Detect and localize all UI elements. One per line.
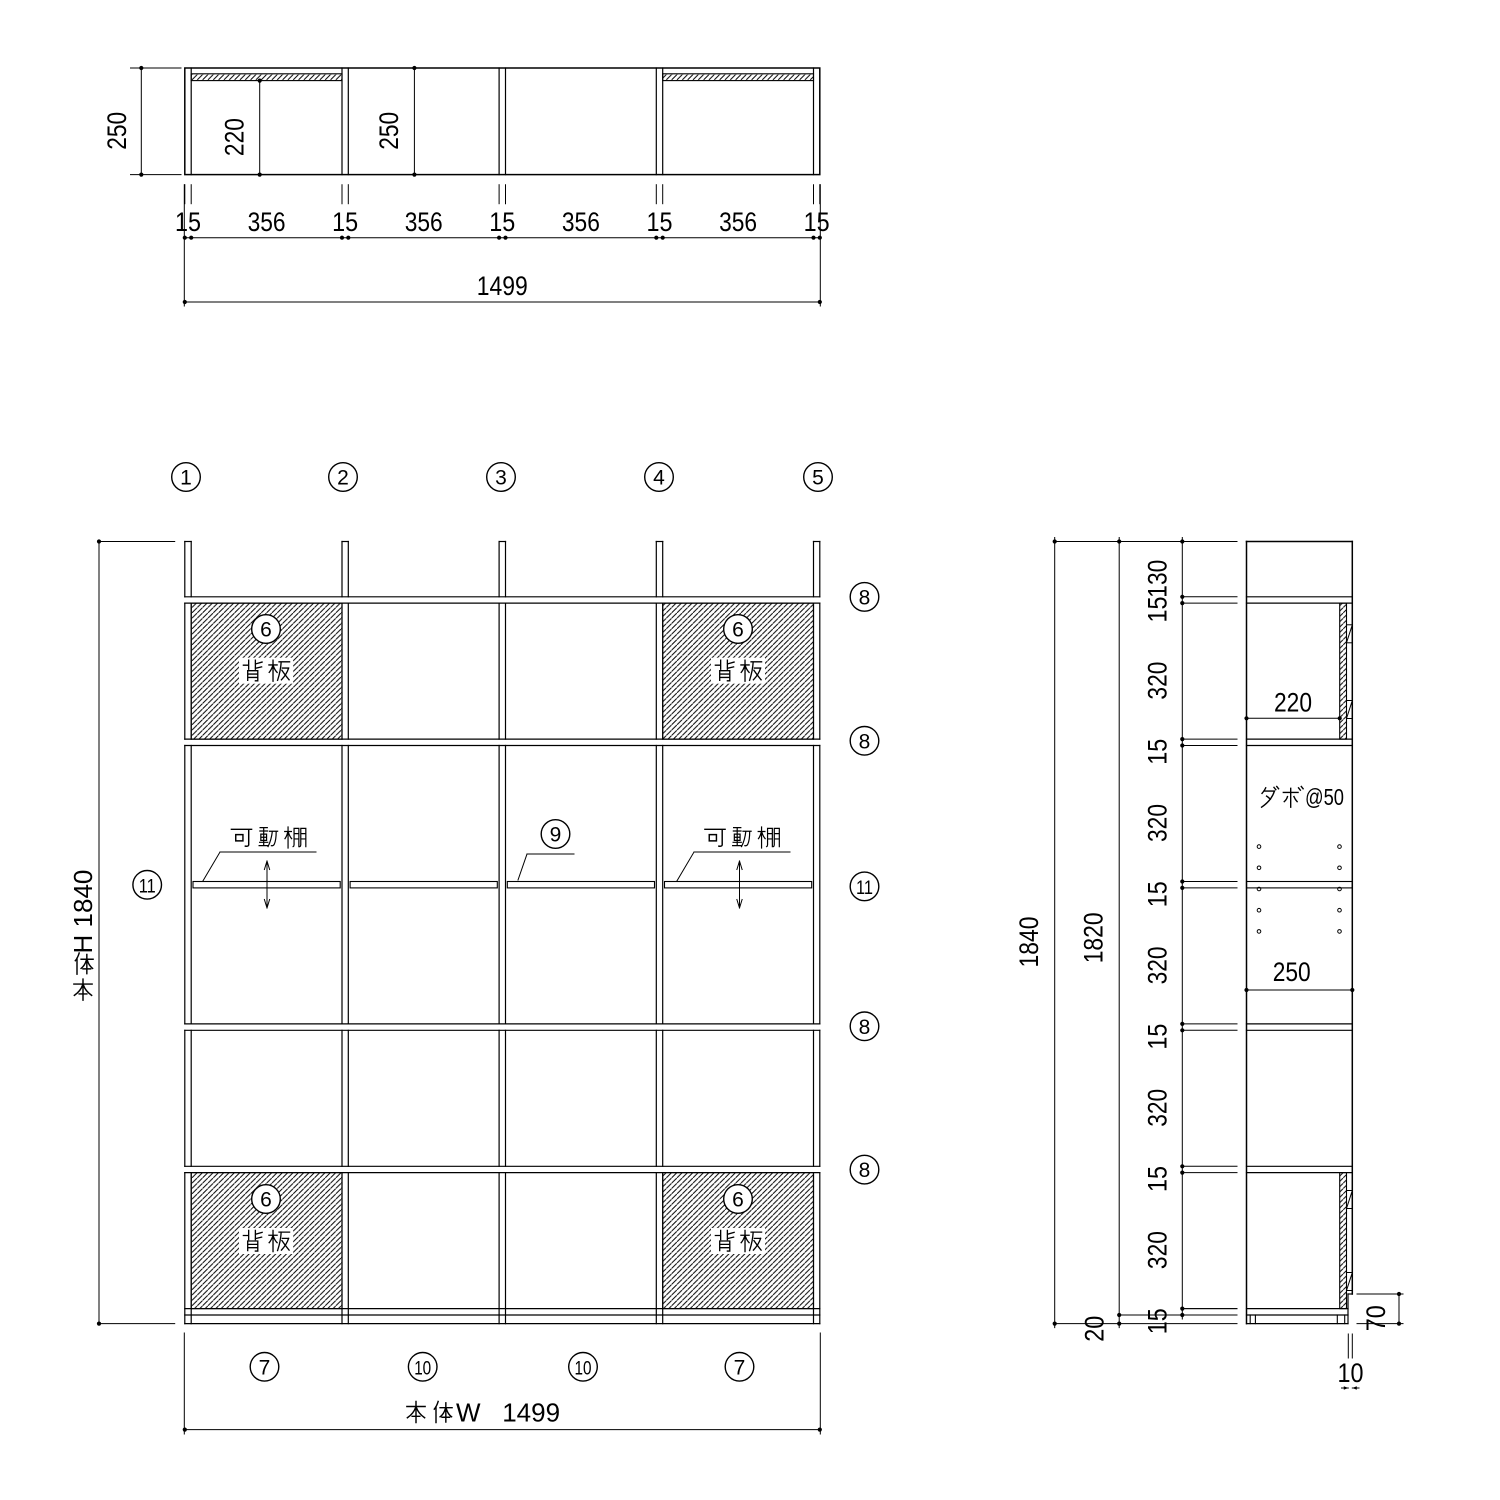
svg-text:3: 3 <box>495 467 507 490</box>
svg-text:11: 11 <box>139 876 156 897</box>
svg-text:15: 15 <box>1143 1024 1173 1050</box>
svg-text:15: 15 <box>647 207 673 237</box>
svg-text:356: 356 <box>562 207 600 237</box>
svg-text:250: 250 <box>374 112 404 150</box>
svg-text:1499: 1499 <box>477 271 528 301</box>
svg-text:6: 6 <box>260 1189 272 1212</box>
svg-text:15: 15 <box>1143 1166 1173 1192</box>
svg-text:6: 6 <box>732 619 744 642</box>
svg-text:1840: 1840 <box>1014 917 1044 968</box>
svg-text:15: 15 <box>1143 881 1173 907</box>
svg-text:8: 8 <box>859 586 871 609</box>
svg-text:320: 320 <box>1143 946 1173 984</box>
svg-text:11: 11 <box>856 878 873 899</box>
svg-text:6: 6 <box>732 1189 744 1212</box>
svg-text:7: 7 <box>734 1356 746 1379</box>
svg-text:10: 10 <box>575 1358 592 1379</box>
svg-text:356: 356 <box>719 207 757 237</box>
svg-text:15: 15 <box>489 207 515 237</box>
svg-text:356: 356 <box>248 207 286 237</box>
svg-text:6: 6 <box>260 619 272 642</box>
svg-text:20: 20 <box>1080 1316 1110 1342</box>
svg-text:8: 8 <box>859 730 871 753</box>
svg-text:@50: @50 <box>1305 784 1344 810</box>
svg-text:15: 15 <box>1143 739 1173 765</box>
svg-text:15: 15 <box>1143 1308 1173 1334</box>
svg-text:H 1840: H 1840 <box>68 870 98 954</box>
svg-text:7: 7 <box>259 1356 271 1379</box>
svg-text:10: 10 <box>1338 1358 1364 1388</box>
svg-text:9: 9 <box>550 824 562 847</box>
svg-text:4: 4 <box>653 467 665 490</box>
svg-text:5: 5 <box>812 467 824 490</box>
svg-text:320: 320 <box>1143 1231 1173 1269</box>
svg-text:220: 220 <box>220 118 250 156</box>
svg-text:15: 15 <box>175 207 201 237</box>
svg-text:8: 8 <box>859 1159 871 1182</box>
svg-text:10: 10 <box>414 1358 431 1379</box>
svg-text:320: 320 <box>1143 1089 1173 1127</box>
svg-text:15: 15 <box>332 207 358 237</box>
svg-text:8: 8 <box>859 1016 871 1039</box>
svg-text:250: 250 <box>1273 957 1311 987</box>
svg-text:220: 220 <box>1274 688 1312 718</box>
svg-text:15: 15 <box>1143 597 1173 623</box>
svg-text:70: 70 <box>1361 1305 1391 1331</box>
svg-text:320: 320 <box>1143 804 1173 842</box>
svg-text:1: 1 <box>180 467 192 490</box>
svg-text:320: 320 <box>1143 662 1173 700</box>
svg-text:15: 15 <box>804 207 830 237</box>
svg-text:1820: 1820 <box>1079 912 1109 963</box>
svg-text:W 1499: W 1499 <box>456 1398 560 1428</box>
svg-text:2: 2 <box>337 467 349 490</box>
svg-text:356: 356 <box>405 207 443 237</box>
svg-text:130: 130 <box>1143 560 1173 598</box>
svg-text:250: 250 <box>102 112 132 150</box>
